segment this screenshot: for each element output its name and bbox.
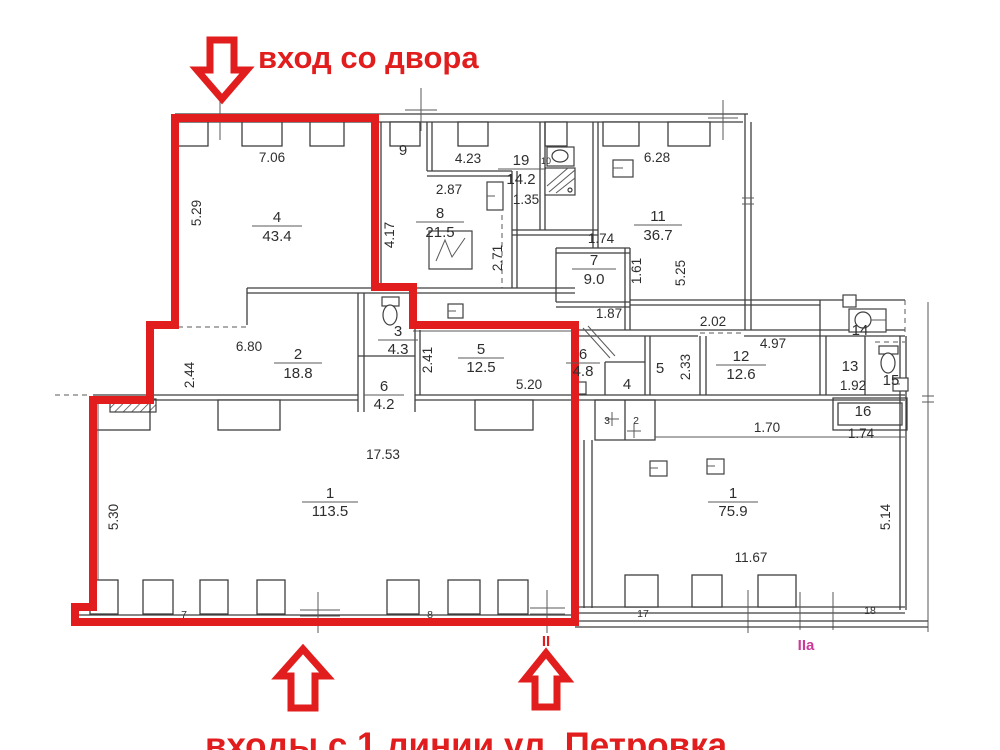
- dim-4-17: 4.17: [382, 222, 397, 248]
- arrow-up-icon: [525, 653, 567, 707]
- dim-7-06: 7.06: [259, 150, 285, 165]
- svg-text:6: 6: [380, 378, 388, 395]
- room-label-5-small: 5: [656, 360, 664, 377]
- dim-5-25: 5.25: [673, 260, 688, 286]
- dim-6-28: 6.28: [644, 150, 670, 165]
- entrance-top-label: вход со двора: [258, 40, 479, 75]
- svg-text:43.4: 43.4: [262, 228, 291, 245]
- window-piers-top: [178, 122, 710, 146]
- section-marker-iia: IIa: [798, 637, 815, 654]
- dim-2-41: 2.41: [420, 347, 435, 373]
- room-label-16: 16: [855, 403, 872, 420]
- dim-5-20: 5.20: [516, 377, 542, 392]
- window-number-8: 8: [427, 609, 433, 621]
- svg-text:18.8: 18.8: [283, 365, 312, 382]
- window-number-18: 18: [864, 605, 876, 617]
- svg-text:9.0: 9.0: [584, 271, 605, 288]
- section-marker-ii: II: [542, 633, 550, 650]
- svg-text:1: 1: [326, 485, 334, 502]
- dim-5-14: 5.14: [878, 503, 893, 530]
- svg-text:12.6: 12.6: [726, 366, 755, 383]
- dim-1-35: 1.35: [513, 192, 539, 207]
- room-label-6a: 64.2: [364, 378, 404, 413]
- window-number-7: 7: [181, 609, 187, 621]
- svg-text:19: 19: [513, 152, 530, 169]
- svg-text:12: 12: [733, 348, 750, 365]
- svg-text:4.3: 4.3: [388, 341, 409, 358]
- dim-11-67: 11.67: [735, 550, 768, 565]
- room-label-2-small: 2: [633, 415, 639, 427]
- room-label-9: 9: [399, 142, 407, 159]
- wall-piers-mid: [93, 400, 533, 430]
- room-label-11: 1136.7: [634, 208, 682, 244]
- dim-1-61: 1.61: [629, 258, 644, 284]
- room-label-15: 15: [883, 372, 900, 389]
- svg-text:36.7: 36.7: [643, 227, 672, 244]
- svg-text:4: 4: [273, 209, 281, 226]
- room-label-14: 14: [852, 322, 869, 339]
- dim-5-29: 5.29: [189, 200, 204, 226]
- room-label-4-small: 4: [623, 376, 631, 393]
- svg-text:75.9: 75.9: [718, 503, 747, 520]
- dim-6-80: 6.80: [236, 339, 262, 354]
- dim-1-70: 1.70: [754, 420, 780, 435]
- svg-text:6: 6: [579, 346, 587, 363]
- svg-text:2: 2: [294, 346, 302, 363]
- svg-text:21.5: 21.5: [425, 224, 454, 241]
- floor-plan-svg: вход со двора входы с 1 линии ул. Петров…: [0, 0, 1000, 750]
- floor-plan-canvas: вход со двора входы с 1 линии ул. Петров…: [0, 0, 1000, 750]
- room-label-12: 1212.6: [716, 348, 766, 383]
- svg-text:5: 5: [477, 341, 485, 358]
- room-label-7: 79.0: [572, 252, 616, 288]
- room-label-4: 443.4: [252, 209, 302, 245]
- dim-2-44: 2.44: [182, 361, 197, 388]
- window-piers-bottom-right: [625, 575, 796, 607]
- svg-text:3: 3: [394, 323, 402, 340]
- dim-2-71: 2.71: [490, 245, 505, 271]
- arrow-up-icon: [279, 649, 327, 708]
- dim-17-53: 17.53: [366, 447, 400, 462]
- dim-1-74-b: 1.74: [848, 426, 875, 441]
- room-label-3-small: 3: [604, 415, 610, 427]
- svg-text:8: 8: [436, 205, 444, 222]
- svg-text:14.2: 14.2: [506, 171, 535, 188]
- svg-text:4.8: 4.8: [573, 363, 594, 380]
- svg-text:11: 11: [650, 208, 666, 225]
- room-label-10: 10: [541, 156, 551, 166]
- dim-4-97: 4.97: [760, 336, 786, 351]
- dim-4-23: 4.23: [455, 151, 481, 166]
- room-label-19: 1914.2: [498, 152, 546, 188]
- dim-2-02: 2.02: [700, 314, 726, 329]
- dim-2-33: 2.33: [678, 354, 693, 380]
- svg-text:7: 7: [590, 252, 598, 269]
- dim-1-92: 1.92: [840, 378, 866, 393]
- dim-5-30: 5.30: [106, 504, 121, 530]
- room-label-13: 13: [842, 358, 859, 375]
- room-label-1b: 175.9: [708, 485, 758, 520]
- room-label-5: 512.5: [458, 341, 504, 376]
- svg-text:12.5: 12.5: [466, 359, 495, 376]
- room-label-2: 218.8: [274, 346, 322, 382]
- svg-text:4.2: 4.2: [374, 396, 395, 413]
- dim-1-87: 1.87: [596, 306, 622, 321]
- entrance-bottom-label: входы с 1 линии ул. Петровка: [205, 726, 728, 750]
- dim-1-74-a: 1.74: [588, 231, 615, 246]
- arrow-down-icon: [197, 40, 247, 99]
- window-number-17: 17: [637, 608, 649, 620]
- room-label-1a: 1113.5: [302, 485, 358, 520]
- dim-2-87: 2.87: [436, 182, 462, 197]
- svg-text:113.5: 113.5: [312, 503, 348, 520]
- window-piers-bottom-left: [90, 580, 528, 614]
- svg-text:1: 1: [729, 485, 737, 502]
